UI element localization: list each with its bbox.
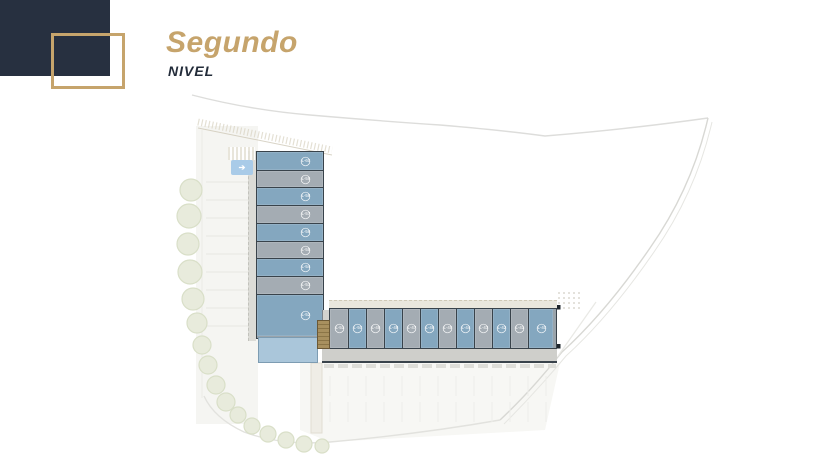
unit-L-41: L-41 bbox=[510, 309, 528, 348]
unit-label: L-56 bbox=[301, 228, 310, 237]
unit-label: L-57 bbox=[301, 210, 310, 219]
unit-label: L-43 bbox=[479, 324, 488, 333]
unit-label: L-53 bbox=[301, 281, 310, 290]
unit-L-44: L-44 bbox=[456, 309, 474, 348]
unit-L-59: L-59 bbox=[257, 170, 323, 187]
unit-L-47: L-47 bbox=[402, 309, 420, 348]
unit-label: L-47 bbox=[407, 324, 416, 333]
brand-logo-outline bbox=[51, 33, 125, 89]
unit-L-40: L-40 bbox=[528, 309, 553, 348]
unit-label: L-44 bbox=[461, 324, 470, 333]
unit-L-48: L-48 bbox=[384, 309, 402, 348]
unit-L-55: L-55 bbox=[257, 241, 323, 258]
unit-label: L-51 bbox=[334, 324, 343, 333]
unit-L-54: L-54 bbox=[257, 258, 323, 276]
vertical-wing: L-60L-59L-58L-57L-56L-55L-54L-53L-52 bbox=[256, 151, 324, 339]
unit-label: L-52 bbox=[301, 311, 310, 320]
unit-label: L-58 bbox=[301, 192, 310, 201]
corridor-strip bbox=[322, 349, 557, 363]
unit-L-46: L-46 bbox=[420, 309, 438, 348]
patio-dots bbox=[558, 292, 580, 309]
walkway-top-strip bbox=[329, 300, 557, 308]
staircase bbox=[317, 320, 330, 349]
slide: { "header": { "title": "Segundo", "subti… bbox=[0, 0, 828, 470]
unit-label: L-54 bbox=[301, 263, 310, 272]
unit-L-42: L-42 bbox=[492, 309, 510, 348]
unit-label: L-40 bbox=[536, 324, 545, 333]
unit-label: L-49 bbox=[371, 324, 380, 333]
site-boundary-top bbox=[192, 95, 708, 136]
unit-L-56: L-56 bbox=[257, 223, 323, 241]
unit-label: L-59 bbox=[301, 174, 310, 183]
unit-label: L-45 bbox=[443, 324, 452, 333]
entry-ramp-hatch bbox=[228, 147, 255, 160]
unit-L-43: L-43 bbox=[474, 309, 492, 348]
page-title: Segundo bbox=[166, 26, 298, 60]
horizontal-wing: L-51L-50L-49L-48L-47L-46L-45L-44L-43L-42… bbox=[329, 308, 557, 349]
unit-L-51: L-51 bbox=[330, 309, 348, 348]
terrace-seating-area bbox=[258, 337, 318, 363]
unit-L-49: L-49 bbox=[366, 309, 384, 348]
unit-label: L-48 bbox=[389, 324, 398, 333]
unit-L-57: L-57 bbox=[257, 205, 323, 223]
unit-L-50: L-50 bbox=[348, 309, 366, 348]
unit-label: L-42 bbox=[497, 324, 506, 333]
unit-label: L-41 bbox=[515, 324, 524, 333]
unit-L-58: L-58 bbox=[257, 187, 323, 205]
unit-label: L-55 bbox=[301, 245, 310, 254]
unit-label: L-46 bbox=[425, 324, 434, 333]
walkway-left-strip bbox=[248, 151, 256, 341]
unit-label: L-60 bbox=[301, 156, 310, 165]
page-subtitle: NIVEL bbox=[168, 63, 214, 79]
entrance-arrow-badge: ➔ bbox=[231, 160, 253, 175]
unit-L-45: L-45 bbox=[438, 309, 456, 348]
unit-label: L-50 bbox=[353, 324, 362, 333]
unit-L-52: L-52 bbox=[257, 294, 323, 336]
walk-path-vertical bbox=[311, 363, 322, 433]
unit-L-53: L-53 bbox=[257, 276, 323, 294]
corner-diagonal bbox=[558, 302, 596, 356]
unit-L-60: L-60 bbox=[257, 152, 323, 170]
